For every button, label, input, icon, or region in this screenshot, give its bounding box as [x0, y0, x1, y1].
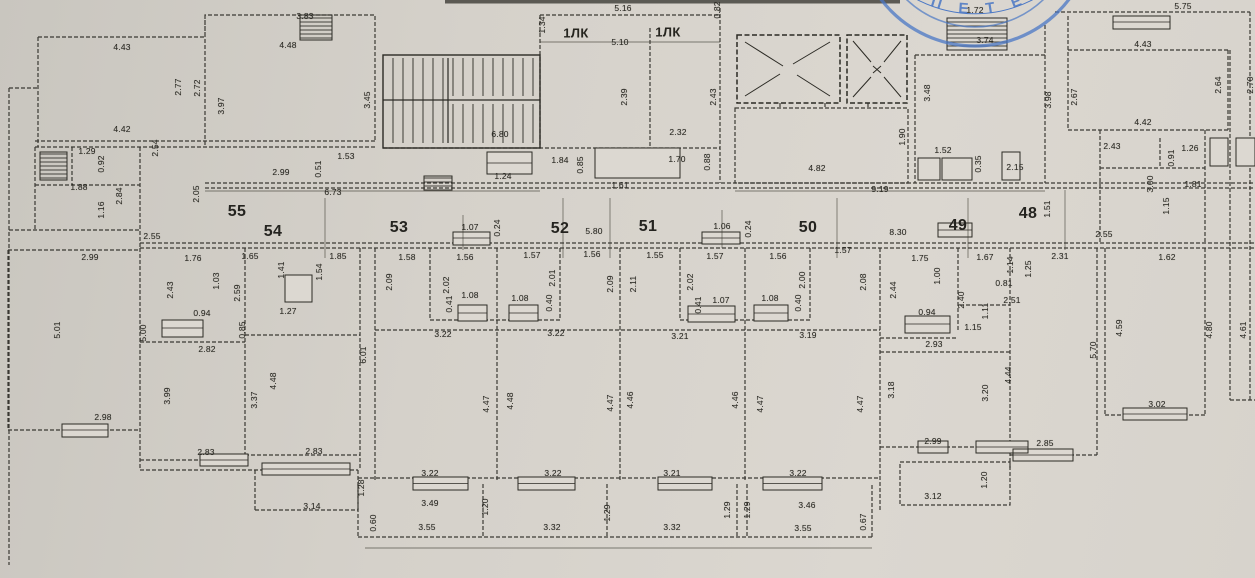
- dimension-label: 2.72: [192, 79, 202, 96]
- dimension-label: 1.06: [713, 221, 730, 231]
- dimension-label: 1.84: [551, 155, 568, 165]
- dimension-label: 2.11: [628, 276, 638, 293]
- dimension-label: 3.32: [663, 522, 680, 532]
- dimension-label: 2.43: [1103, 141, 1120, 151]
- dimension-label: 0.94: [918, 307, 935, 317]
- dimension-label: 5.80: [585, 226, 602, 236]
- staircase-label: 1ЛК: [563, 26, 589, 41]
- dimension-label: 1.58: [398, 252, 415, 262]
- dimension-label: 1.16: [96, 201, 106, 218]
- dimension-label: 4.42: [1134, 117, 1151, 127]
- dimension-label: 2.64: [1213, 76, 1223, 93]
- dimension-label: 4.43: [1134, 39, 1151, 49]
- dimension-label: 1.65: [241, 251, 258, 261]
- dimension-label: 4.47: [481, 395, 491, 412]
- dimension-label: 0.85: [237, 321, 247, 338]
- dimension-label: 3.55: [418, 522, 435, 532]
- dimension-label: 3.22: [544, 468, 561, 478]
- dimension-label: 3.37: [249, 391, 259, 408]
- dimension-label: 2.00: [797, 271, 807, 288]
- room-number-label: 54: [264, 223, 283, 241]
- floor-plan-canvas: · П Е Т Е Р 3.834.434.482.772.723.973.45…: [0, 0, 1255, 578]
- dimension-label: 3.22: [789, 468, 806, 478]
- dimension-label: 3.46: [798, 500, 815, 510]
- dimension-label: 3.21: [671, 331, 688, 341]
- dimension-label: 4.48: [279, 40, 296, 50]
- dimension-label: 1.29: [742, 501, 752, 518]
- dimension-label: 2.08: [858, 273, 868, 290]
- dimension-label: 1.26: [1181, 143, 1198, 153]
- dimension-label: 0.67: [858, 513, 868, 530]
- dimension-label: 1.11: [980, 303, 990, 320]
- dimension-label: 2.67: [1069, 88, 1079, 105]
- dimension-label: 3.22: [434, 329, 451, 339]
- dimension-label: 0.41: [693, 296, 703, 313]
- dimension-label: 4.61: [1238, 321, 1248, 338]
- dimension-label: 9.19: [871, 184, 888, 194]
- dimension-label: 0.85: [575, 156, 585, 173]
- dimension-label: 4.46: [625, 391, 635, 408]
- dimension-label: 1.61: [611, 180, 628, 190]
- room-number-label: 55: [228, 203, 247, 221]
- dimension-label: 3.21: [663, 468, 680, 478]
- room-number-label: 50: [799, 219, 818, 237]
- dimension-label: 0.41: [444, 295, 454, 312]
- dimension-label: 2.01: [547, 269, 557, 286]
- room-number-label: 48: [1019, 205, 1038, 223]
- dimension-label: 2.39: [619, 88, 629, 105]
- room-number-label: 52: [551, 220, 570, 238]
- dimension-label: 3.45: [362, 91, 372, 108]
- dimension-label: 1.51: [1042, 200, 1052, 217]
- dimension-label: 2.55: [1095, 229, 1112, 239]
- dimension-label: 2.99: [272, 167, 289, 177]
- dimension-label: 3.22: [547, 328, 564, 338]
- dimension-label: 2.40: [956, 291, 966, 308]
- dimension-label: 1.29: [722, 501, 732, 518]
- dimension-label: 3.12: [924, 491, 941, 501]
- dimension-label: 1.56: [583, 249, 600, 259]
- dimension-label: 4.47: [605, 394, 615, 411]
- dimension-label: 0.40: [793, 294, 803, 311]
- dimension-label: 2.70: [1245, 76, 1255, 93]
- dimension-label: 0.92: [96, 155, 106, 172]
- dimension-label: 1.07: [461, 222, 478, 232]
- dimension-label: 1.88: [70, 182, 87, 192]
- dimension-label: 1.57: [834, 245, 851, 255]
- dimension-label: 2.44: [888, 281, 898, 298]
- room-number-label: 49: [949, 217, 968, 235]
- dimension-label: 4.82: [808, 163, 825, 173]
- dimension-label: 2.77: [173, 78, 183, 95]
- dimension-label: 3.83: [296, 11, 313, 21]
- dimension-label: 2.09: [605, 275, 615, 292]
- dimension-label: 5.16: [614, 3, 631, 13]
- dimension-label: 2.99: [81, 252, 98, 262]
- dimension-label: 6.73: [324, 187, 341, 197]
- dimension-label: 3.32: [543, 522, 560, 532]
- dimension-label: 0.82: [712, 1, 722, 18]
- dimension-label: 5.70: [1088, 341, 1098, 358]
- dimension-label: 4.47: [855, 395, 865, 412]
- staircase-label: 1ЛК: [655, 25, 681, 40]
- dimension-label: 2.05: [191, 185, 201, 202]
- dimension-label: 2.83: [305, 446, 322, 456]
- dimension-label: 3.99: [162, 387, 172, 404]
- dimension-label: 1.14: [1005, 256, 1015, 273]
- dimension-label: 1.27: [279, 306, 296, 316]
- dimension-label: 3.55: [794, 523, 811, 533]
- dimension-label: 2.43: [708, 88, 718, 105]
- dimension-label: 1.57: [523, 250, 540, 260]
- room-number-label: 51: [639, 218, 658, 236]
- dimension-label: 0.24: [492, 219, 502, 236]
- dimension-label: 0.88: [702, 153, 712, 170]
- dimension-label: 2.84: [114, 187, 124, 204]
- dimension-label: 0.40: [544, 294, 554, 311]
- dimension-label: 6.01: [358, 346, 368, 363]
- dimension-label: 2.15: [1006, 162, 1023, 172]
- dimension-label: 1.72: [966, 5, 983, 15]
- dimension-label: 1.81: [1184, 179, 1201, 189]
- dimension-label: 4.59: [1114, 319, 1124, 336]
- dimension-label: 4.47: [755, 395, 765, 412]
- dimension-label: 1.20: [480, 498, 490, 515]
- dimension-label: 1.76: [184, 253, 201, 263]
- dimension-label: 1.08: [461, 290, 478, 300]
- dimension-label: 3.97: [216, 97, 226, 114]
- dimension-label: 1.07: [712, 295, 729, 305]
- dimension-label: 4.48: [505, 392, 515, 409]
- dimension-label: 0.94: [193, 308, 210, 318]
- dimension-label: 1.00: [932, 267, 942, 284]
- dimension-label: 2.02: [685, 273, 695, 290]
- dimension-label: 1.15: [1161, 197, 1171, 214]
- dimension-label: 6.80: [491, 129, 508, 139]
- dimension-label: 2.55: [143, 231, 160, 241]
- dimension-label: 4.48: [268, 372, 278, 389]
- dimension-label: 1.90: [897, 128, 907, 145]
- dimension-label: 2.54: [150, 139, 160, 156]
- dimension-label: 0.60: [368, 514, 378, 531]
- dimension-label: 0.91: [1166, 149, 1176, 166]
- dimension-label: 4.43: [113, 42, 130, 52]
- dimension-label: 2.02: [441, 276, 451, 293]
- dimension-label: 1.08: [761, 293, 778, 303]
- dimension-label: 5.75: [1174, 1, 1191, 11]
- dimension-label: 3.19: [799, 330, 816, 340]
- dimension-label: 0.81: [995, 278, 1012, 288]
- dimension-label: 0.24: [743, 220, 753, 237]
- dimension-label: 2.51: [1003, 295, 1020, 305]
- dimension-label: 1.55: [646, 250, 663, 260]
- dimension-label: 3.02: [1148, 399, 1165, 409]
- dimension-label: 3.22: [421, 468, 438, 478]
- dimension-label: 2.09: [384, 273, 394, 290]
- dimension-label: 2.32: [669, 127, 686, 137]
- dimension-label: 1.20: [979, 471, 989, 488]
- dimension-label: 1.75: [911, 253, 928, 263]
- dimension-label: 2.31: [1051, 251, 1068, 261]
- dimension-label: 1.08: [511, 293, 528, 303]
- dimension-label: 0.51: [313, 160, 323, 177]
- dimension-label: 1.28: [356, 479, 366, 496]
- dimension-label: 2.59: [232, 284, 242, 301]
- dimension-label: 2.85: [1036, 438, 1053, 448]
- dimension-label: 1.25: [1023, 260, 1033, 277]
- dimension-label: 1.85: [329, 251, 346, 261]
- dimension-label: 3.00: [1145, 175, 1155, 192]
- dimension-label: 3.18: [886, 381, 896, 398]
- dimension-label: 8.30: [889, 227, 906, 237]
- dimension-label: 1.67: [976, 252, 993, 262]
- dimension-label: 1.56: [769, 251, 786, 261]
- dimension-label: 1.56: [456, 252, 473, 262]
- dimension-label: 1.70: [668, 154, 685, 164]
- dimension-label: 2.98: [94, 412, 111, 422]
- room-number-label: 53: [390, 219, 409, 237]
- dimension-label: 1.24: [494, 171, 511, 181]
- dimension-label: 3.98: [1043, 91, 1053, 108]
- dimension-label: 2.43: [165, 281, 175, 298]
- dimension-label: 3.20: [980, 384, 990, 401]
- dimension-label: 5.10: [611, 37, 628, 47]
- dimension-label: 1.62: [1158, 252, 1175, 262]
- dimension-label: 1.54: [314, 263, 324, 280]
- dimension-label: 2.93: [925, 339, 942, 349]
- dimension-label: 1.52: [934, 145, 951, 155]
- dimension-label: 4.42: [113, 124, 130, 134]
- dimension-label: 5.01: [52, 321, 62, 338]
- dimension-label: 4.46: [730, 391, 740, 408]
- dimension-label: 5.00: [138, 324, 148, 341]
- labels-layer: 3.834.434.482.772.723.973.454.422.541.29…: [0, 0, 1255, 578]
- dimension-label: 2.99: [924, 436, 941, 446]
- dimension-label: 4.44: [1003, 366, 1013, 383]
- dimension-label: 3.14: [303, 501, 320, 511]
- dimension-label: 0.35: [973, 155, 983, 172]
- dimension-label: 1.34: [537, 16, 547, 33]
- dimension-label: 3.49: [421, 498, 438, 508]
- dimension-label: 1.03: [211, 272, 221, 289]
- dimension-label: 1.53: [337, 151, 354, 161]
- dimension-label: 1.15: [964, 322, 981, 332]
- dimension-label: 2.82: [198, 344, 215, 354]
- dimension-label: 1.29: [78, 146, 95, 156]
- dimension-label: 3.74: [976, 35, 993, 45]
- dimension-label: 1.41: [276, 261, 286, 278]
- dimension-label: 3.48: [922, 84, 932, 101]
- dimension-label: 2.83: [197, 447, 214, 457]
- dimension-label: 4.80: [1204, 321, 1214, 338]
- dimension-label: 1.57: [706, 251, 723, 261]
- dimension-label: 1.29: [602, 504, 612, 521]
